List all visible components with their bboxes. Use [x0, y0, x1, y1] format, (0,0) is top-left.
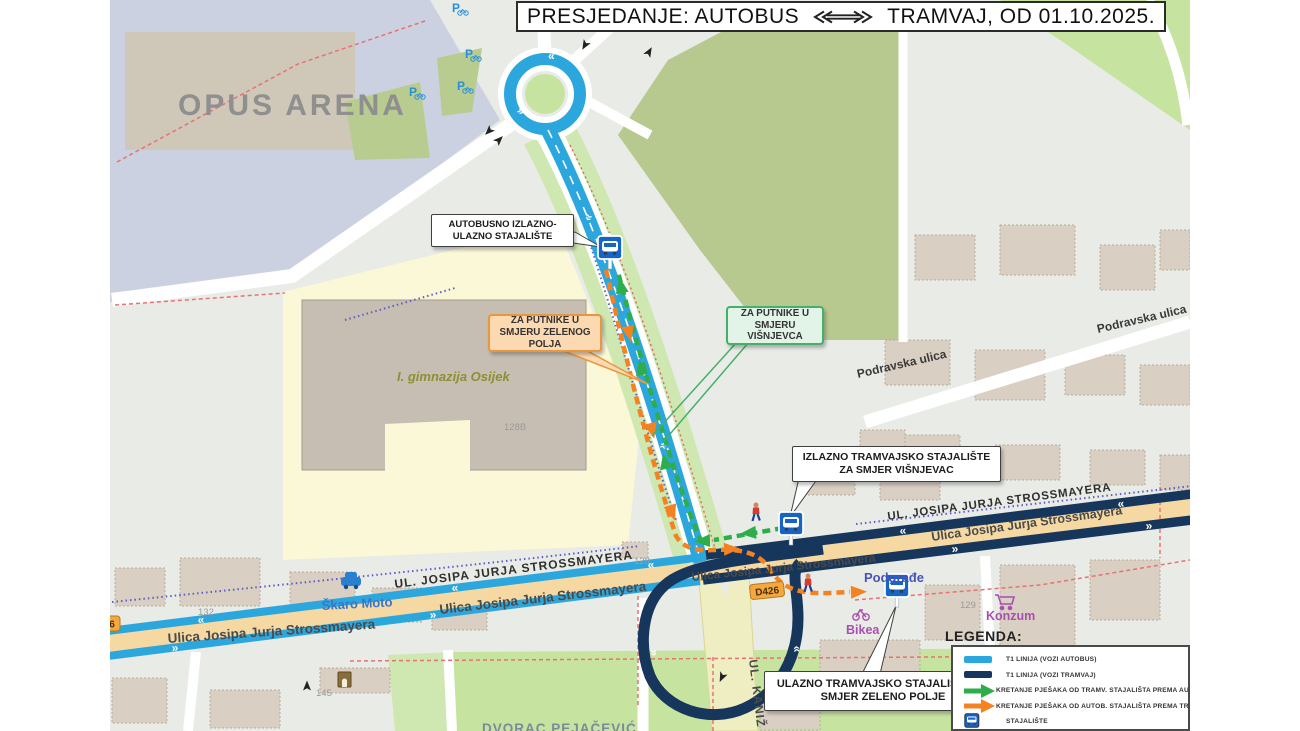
callout-bus-stop: AUTOBUSNO IZLAZNO-ULAZNO STAJALIŠTE [431, 214, 574, 247]
title-left: PRESJEDANJE: AUTOBUS [527, 5, 799, 29]
legend-label: KRETANJE PJEŠAKA OD AUTOB. STAJALIŠTA PR… [996, 703, 1190, 710]
opus-arena-label: OPUS ARENA [178, 89, 407, 122]
callout-passengers-visnjevac: ZA PUTNIKE U SMJERU VIŠNJEVCA [726, 306, 824, 345]
legend-label: T1 LINIJA (VOZI TRAMVAJ) [1006, 672, 1096, 679]
house-number: 145 [316, 688, 332, 699]
transit-infographic: P [0, 0, 1300, 731]
transfer-arrow-icon [811, 9, 875, 25]
poi-label: Konzum [986, 609, 1035, 623]
legend-item-walk-orange: KRETANJE PJEŠAKA OD AUTOB. STAJALIŠTA PR… [953, 699, 1188, 715]
bus-line-swatch [964, 656, 1006, 664]
legend-label: STAJALIŠTE [1006, 718, 1048, 725]
map-svg: P [110, 0, 1190, 731]
house-number: 132 [198, 607, 214, 618]
callout-tram-exit: IZLAZNO TRAMVAJSKO STAJALIŠTE ZA SMJER V… [792, 446, 1001, 482]
tram-line-swatch [964, 671, 1006, 679]
legend-item-stop: STAJALIŠTE [953, 714, 1188, 730]
dvorac-label: DVORAC PEJAČEVIĆ [482, 721, 637, 731]
house-number: 129 [960, 600, 976, 611]
legend-item-bus: T1 LINIJA (VOZI AUTOBUS) [953, 652, 1188, 668]
house-number: 128B [504, 422, 526, 433]
legend-label: T1 LINIJA (VOZI AUTOBUS) [1006, 656, 1097, 663]
road-ref-label: 6 [110, 620, 115, 631]
poi-label: Bikea [846, 623, 880, 637]
legend-item-tram: T1 LINIJA (VOZI TRAMVAJ) [953, 668, 1188, 684]
callout-passengers-zeleno: ZA PUTNIKE U SMJERU ZELENOG POLJA [488, 314, 602, 352]
road-ref-badge: D426 [749, 581, 784, 599]
legend-heading: LEGENDA: [945, 628, 1022, 644]
title-right: TRAMVAJ, OD 01.10.2025. [887, 5, 1155, 29]
gimnazija-label: I. gimnazija Osijek [397, 369, 510, 384]
castle-icon [338, 672, 351, 687]
map-canvas: P [110, 0, 1190, 731]
stop-icon [964, 713, 1006, 730]
road-ref-badge-cut: 6 [110, 616, 120, 631]
podgrade-label: Podgrađe [864, 570, 924, 585]
legend-label: KRETANJE PJEŠAKA OD TRAMV. STAJALIŠTA PR… [996, 687, 1190, 694]
house-number: 128 [634, 556, 650, 567]
legend: T1 LINIJA (VOZI AUTOBUS) T1 LINIJA (VOZI… [951, 645, 1190, 731]
legend-item-walk-green: KRETANJE PJEŠAKA OD TRAMV. STAJALIŠTA PR… [953, 683, 1188, 699]
walk-arrow-orange-icon [964, 699, 996, 713]
route-chevron: « [548, 49, 555, 63]
walk-arrow-green-icon [964, 684, 996, 698]
title-box: PRESJEDANJE: AUTOBUS TRAMVAJ, OD 01.10.2… [516, 1, 1166, 32]
